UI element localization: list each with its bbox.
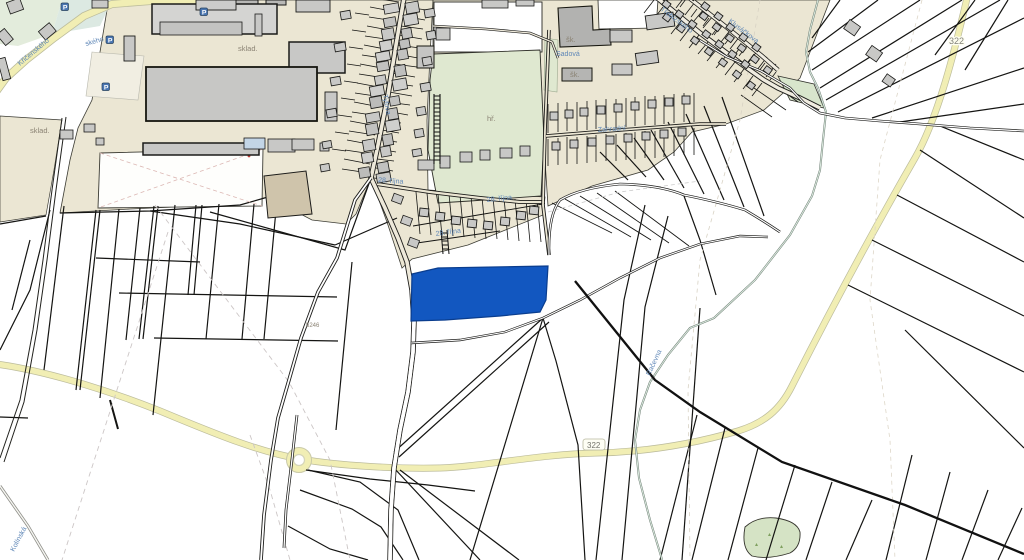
svg-text:šk.: šk. <box>566 35 576 44</box>
svg-text:▴: ▴ <box>755 542 758 548</box>
svg-text:sklad.: sklad. <box>30 126 50 135</box>
svg-text:P: P <box>63 4 68 11</box>
svg-text:▴: ▴ <box>768 532 771 538</box>
svg-text:hř.: hř. <box>487 114 496 123</box>
svg-text:sklad.: sklad. <box>238 44 258 53</box>
svg-text:šk.: šk. <box>570 70 580 79</box>
svg-text:322: 322 <box>587 441 601 450</box>
svg-text:322: 322 <box>949 36 964 46</box>
svg-text:▴: ▴ <box>780 544 783 550</box>
svg-text:P: P <box>104 84 109 91</box>
svg-text:5246: 5246 <box>306 323 320 329</box>
svg-text:Sadová: Sadová <box>556 51 580 58</box>
svg-text:P: P <box>108 37 113 44</box>
svg-text:P: P <box>202 9 207 16</box>
